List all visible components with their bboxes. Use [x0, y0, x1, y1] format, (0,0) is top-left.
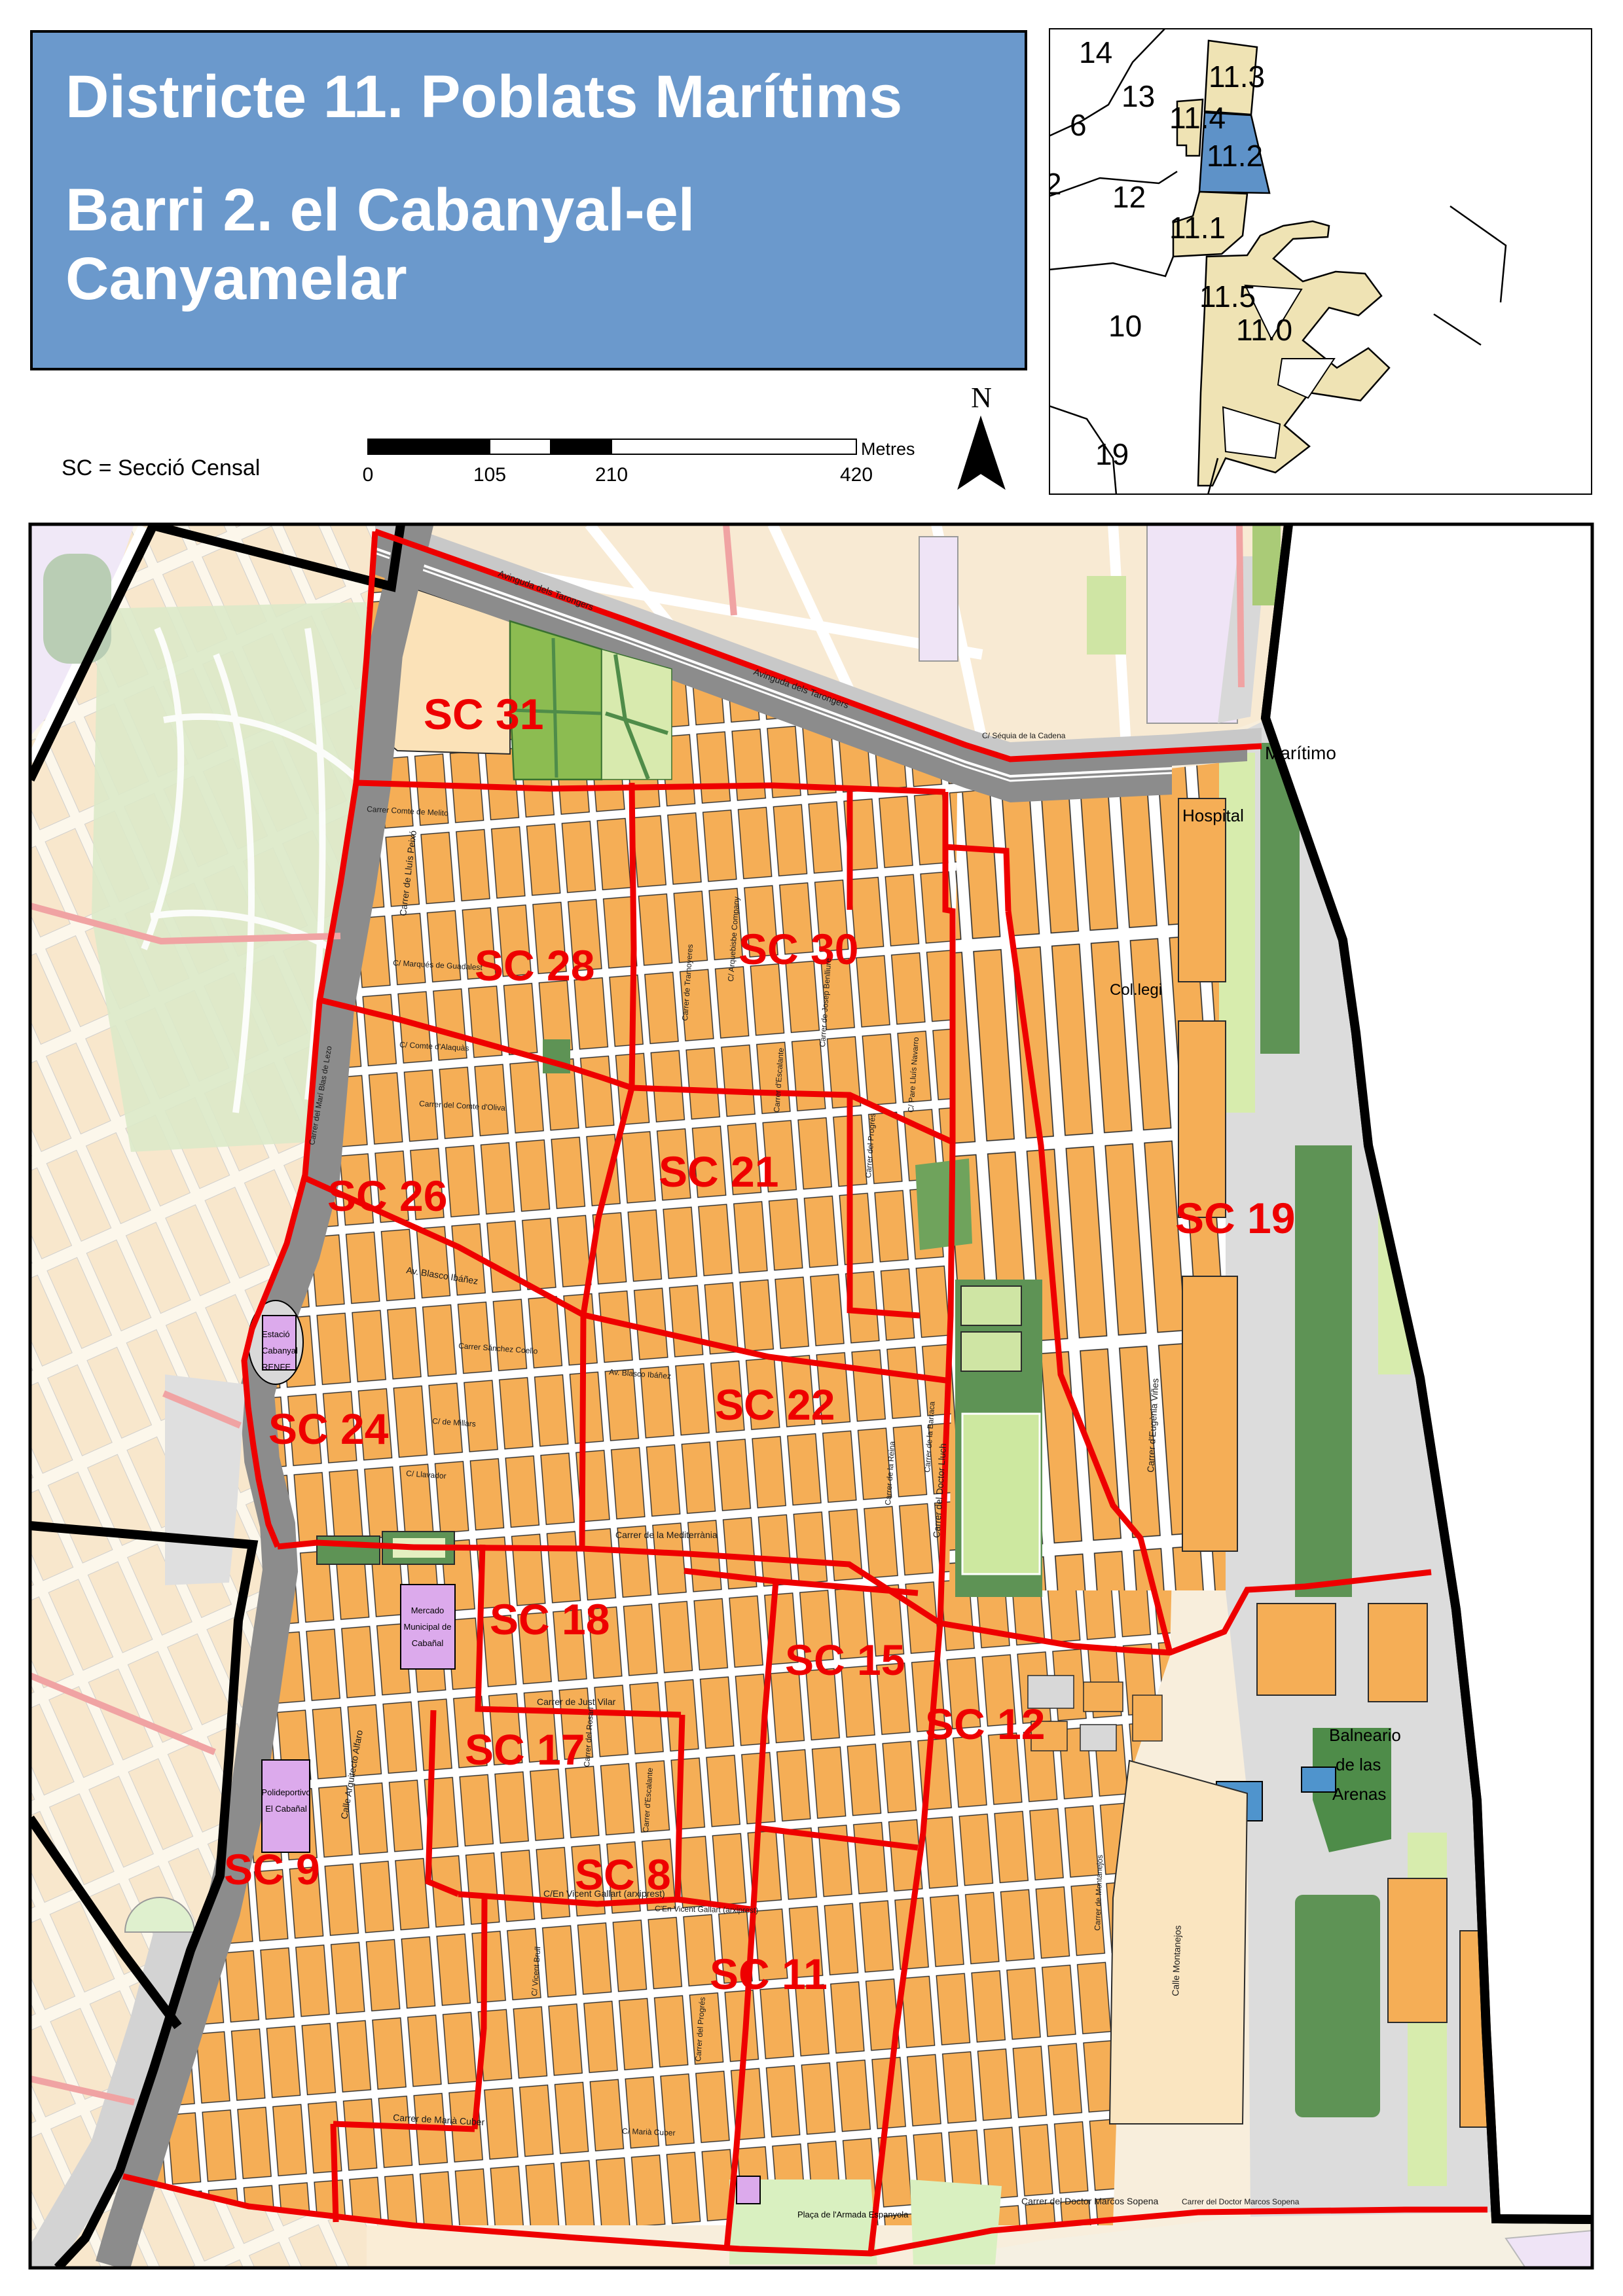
svg-text:11.5: 11.5: [1199, 279, 1256, 314]
svg-text:Carrer de Just Vilar: Carrer de Just Vilar: [537, 1696, 616, 1707]
svg-text:Plaça de l'Armada Espanyola: Plaça de l'Armada Espanyola: [797, 2210, 909, 2219]
svg-text:210: 210: [595, 464, 628, 486]
svg-text:11.0: 11.0: [1236, 313, 1292, 347]
svg-text:de las: de las: [1336, 1755, 1381, 1774]
svg-text:11.4: 11.4: [1169, 101, 1226, 135]
svg-text:SC 22: SC 22: [715, 1380, 835, 1429]
svg-text:SC 18: SC 18: [490, 1595, 610, 1643]
svg-text:12: 12: [1112, 180, 1146, 214]
svg-text:SC 17: SC 17: [465, 1725, 585, 1774]
svg-text:Municipal de: Municipal de: [404, 1622, 452, 1632]
svg-text:C/ Séquia de la Cadena: C/ Séquia de la Cadena: [982, 731, 1066, 740]
svg-text:SC 28: SC 28: [475, 941, 594, 990]
svg-text:Barri 2. el Cabanyal-el: Barri 2. el Cabanyal-el: [65, 177, 695, 243]
svg-text:Districte 11. Poblats Marítims: Districte 11. Poblats Marítims: [65, 63, 902, 130]
svg-text:Mercado: Mercado: [411, 1605, 445, 1615]
svg-text:C/En Vicent Gallart (arxiprest: C/En Vicent Gallart (arxiprest): [543, 1888, 665, 1899]
svg-text:N: N: [971, 382, 992, 414]
svg-text:0: 0: [363, 464, 374, 486]
svg-text:420: 420: [840, 464, 873, 486]
svg-text:SC 21: SC 21: [659, 1147, 778, 1196]
svg-text:Cabanyal: Cabanyal: [262, 1346, 298, 1355]
svg-text:SC 24: SC 24: [268, 1405, 389, 1453]
svg-text:14: 14: [1079, 35, 1112, 69]
svg-text:Polideportivo: Polideportivo: [261, 1787, 310, 1797]
svg-text:Hospital: Hospital: [1182, 806, 1244, 825]
svg-text:SC 12: SC 12: [925, 1700, 1045, 1748]
svg-text:Carrer de la Mediterrània: Carrer de la Mediterrània: [615, 1530, 718, 1540]
svg-text:Carrer del Doctor Marcos Sopen: Carrer del Doctor Marcos Sopena: [1021, 2196, 1159, 2206]
svg-text:SC 11: SC 11: [710, 1950, 828, 1998]
svg-text:C/ Marià Cuber: C/ Marià Cuber: [622, 2126, 676, 2138]
svg-text:El Cabañal: El Cabañal: [265, 1804, 307, 1814]
svg-text:C'En Vicent Gallart (arxiprest: C'En Vicent Gallart (arxiprest): [655, 1904, 758, 1915]
svg-text:SC 31: SC 31: [424, 690, 543, 738]
svg-text:Canyamelar: Canyamelar: [65, 245, 407, 312]
svg-text:Estació: Estació: [262, 1329, 290, 1339]
svg-text:Arenas: Arenas: [1332, 1784, 1386, 1804]
svg-text:10: 10: [1108, 309, 1142, 343]
svg-text:105: 105: [473, 464, 506, 486]
svg-text:RENFE: RENFE: [262, 1362, 291, 1372]
svg-text:SC 15: SC 15: [785, 1636, 905, 1684]
svg-text:Cabañal: Cabañal: [412, 1638, 444, 1648]
svg-text:Metres: Metres: [861, 439, 915, 459]
svg-text:Balneario: Balneario: [1329, 1725, 1401, 1745]
svg-text:SC 26: SC 26: [327, 1172, 447, 1220]
svg-text:19: 19: [1095, 437, 1129, 471]
svg-text:Col.legi: Col.legi: [1110, 981, 1162, 999]
svg-text:Marítimo: Marítimo: [1265, 743, 1336, 763]
svg-text:11.2: 11.2: [1207, 139, 1263, 173]
svg-text:Carrer del Doctor Marcos Sopen: Carrer del Doctor Marcos Sopena: [1182, 2197, 1300, 2206]
svg-text:11.3: 11.3: [1209, 60, 1265, 94]
svg-text:SC 9: SC 9: [224, 1845, 320, 1893]
svg-text:11.1: 11.1: [1169, 211, 1226, 245]
svg-text:SC 19: SC 19: [1175, 1194, 1295, 1242]
svg-text:6: 6: [1070, 108, 1087, 142]
svg-text:SC = Secció Censal: SC = Secció Censal: [62, 456, 260, 480]
svg-text:13: 13: [1122, 79, 1155, 113]
svg-text:SC 30: SC 30: [739, 925, 858, 973]
